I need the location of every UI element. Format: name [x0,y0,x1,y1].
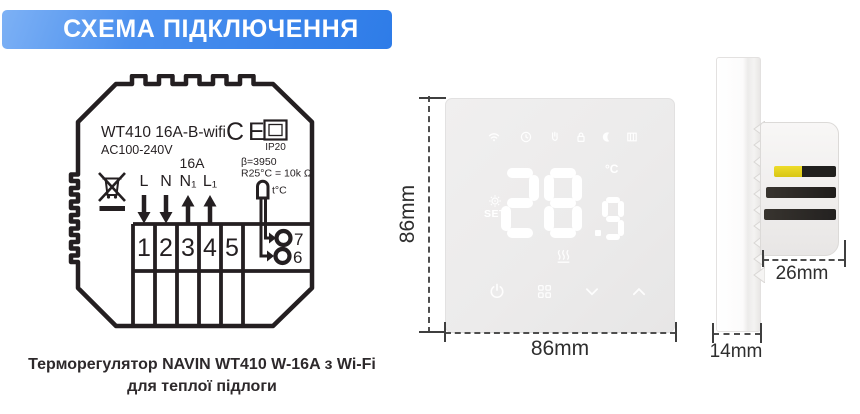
dimension-tick [419,331,446,333]
model-label: WT410 16A-B-wifi [101,124,226,141]
page: СХЕМА ПІДКЛЮЧЕННЯ WT410 16A-B-wifi AC100… [0,0,860,414]
display-decimal-point [595,230,601,236]
height-dimension-label: 86mm [396,184,420,244]
dimension-tick [675,322,677,342]
sensor-terminal-7-label: 7 [294,230,303,249]
sensor-beta-label: β=3950 [241,156,277,168]
height-dimension-line [428,96,430,333]
sensor-terminal-6-label: 6 [293,248,302,267]
terminal-label-N: N [160,173,172,190]
page-title: СХЕМА ПІДКЛЮЧЕННЯ [2,10,392,49]
width-dimension-line [445,332,676,334]
voltage-label: AC100-240V [101,143,173,157]
input-arrow-icon [138,195,173,224]
current-rating-label: 16A [180,155,206,171]
vent-slot-dark [766,187,836,198]
terminal-label-L: L [140,173,149,190]
caption-line-2: для теплої підлоги [12,376,392,398]
sensor-wires [261,198,269,256]
width-dimension-label: 86mm [520,337,600,361]
sensor-terminal-7 [277,231,291,245]
output-arrow-icon [182,195,217,223]
terminal-number: 1 [137,234,151,262]
vent-slot-dark [802,166,836,177]
product-caption: Терморегулятор NAVIN WT410 W-16A з Wi-Fi… [12,354,392,398]
dimension-tick [712,323,714,343]
vent-slot-yellow [774,166,802,177]
ip-rating-inner-box [269,125,282,136]
terminal-number: 2 [159,234,173,262]
temperature-unit: °C [605,162,618,176]
temperature-display [501,168,582,238]
weee-icon [99,173,125,211]
dimension-tick [760,323,762,343]
terminal-number: 3 [181,234,195,262]
thermostat-front-view: SET °C [445,98,675,333]
sensor-label: t°C [272,185,287,197]
depth-dimension-line [763,259,844,261]
ip-rating-label: IP20 [265,142,286,153]
depth-dimension-label: 26mm [762,263,842,285]
dimension-tick [844,240,846,267]
temperature-display-decimal [602,197,624,240]
sensor-resistance-label: R25°C = 10k Ω [241,168,312,180]
vent-slot-dark [764,209,836,220]
sensor-terminal-6 [276,249,290,263]
terminal-label-L1: L₁ [203,173,217,190]
dimension-tick [419,97,446,99]
thickness-dimension-line [713,333,761,335]
dimension-tick [444,322,446,342]
thermostat-outline [71,76,312,326]
wiring-diagram: WT410 16A-B-wifi AC100-240V CE IP20 16A … [58,74,328,336]
floor-sensor-icon [258,181,269,198]
sensor-wire-arrow [267,251,274,262]
terminal-number: 5 [225,234,239,262]
ce-mark: CE [226,118,269,146]
terminal-number: 4 [203,234,217,262]
terminal-label-N1: N₁ [180,173,197,190]
caption-line-1: Терморегулятор NAVIN WT410 W-16A з Wi-Fi [12,354,392,376]
thickness-dimension-label: 14mm [703,341,769,363]
